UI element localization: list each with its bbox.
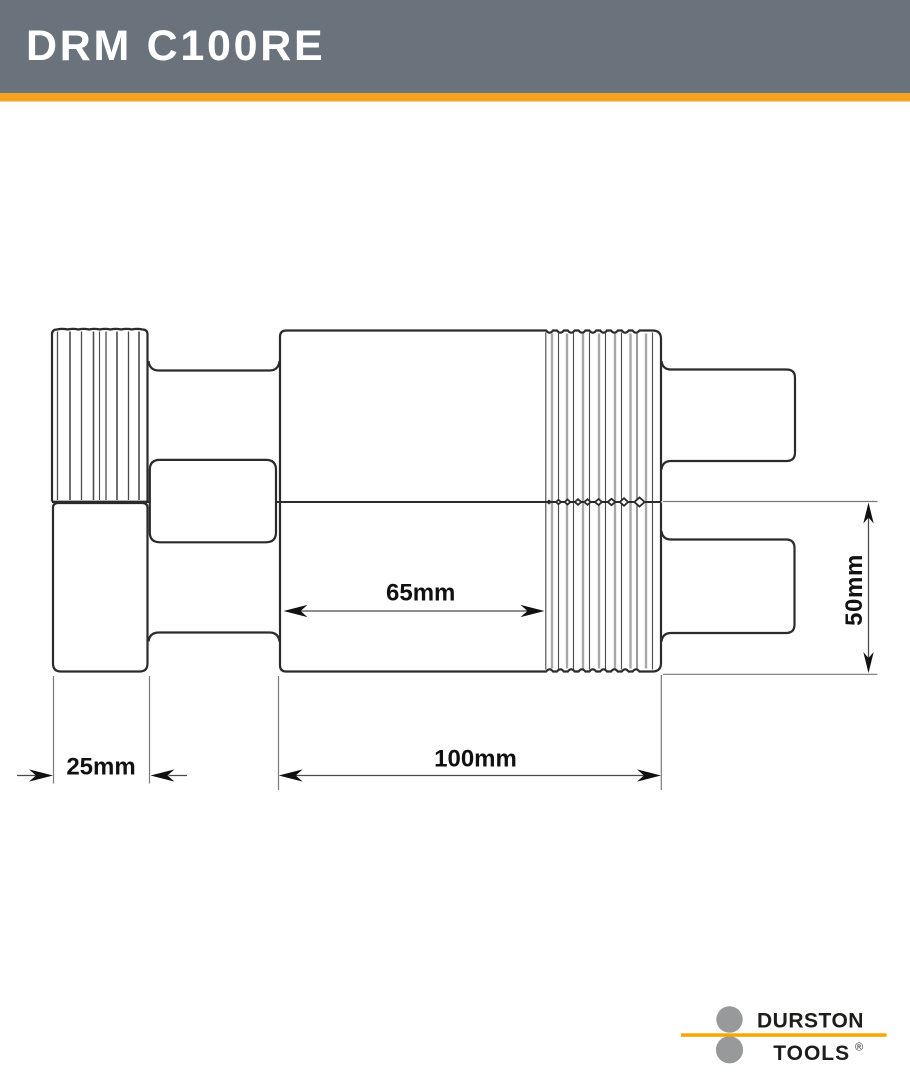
svg-text:65mm: 65mm [386, 580, 455, 607]
svg-text:100mm: 100mm [434, 746, 517, 773]
svg-text:25mm: 25mm [66, 754, 135, 781]
svg-text:®: ® [855, 1042, 863, 1054]
svg-text:50mm: 50mm [841, 554, 868, 626]
svg-text:TOOLS: TOOLS [773, 1042, 850, 1065]
svg-text:DURSTON: DURSTON [757, 1010, 864, 1033]
svg-text:DRM C100RE: DRM C100RE [26, 22, 325, 70]
